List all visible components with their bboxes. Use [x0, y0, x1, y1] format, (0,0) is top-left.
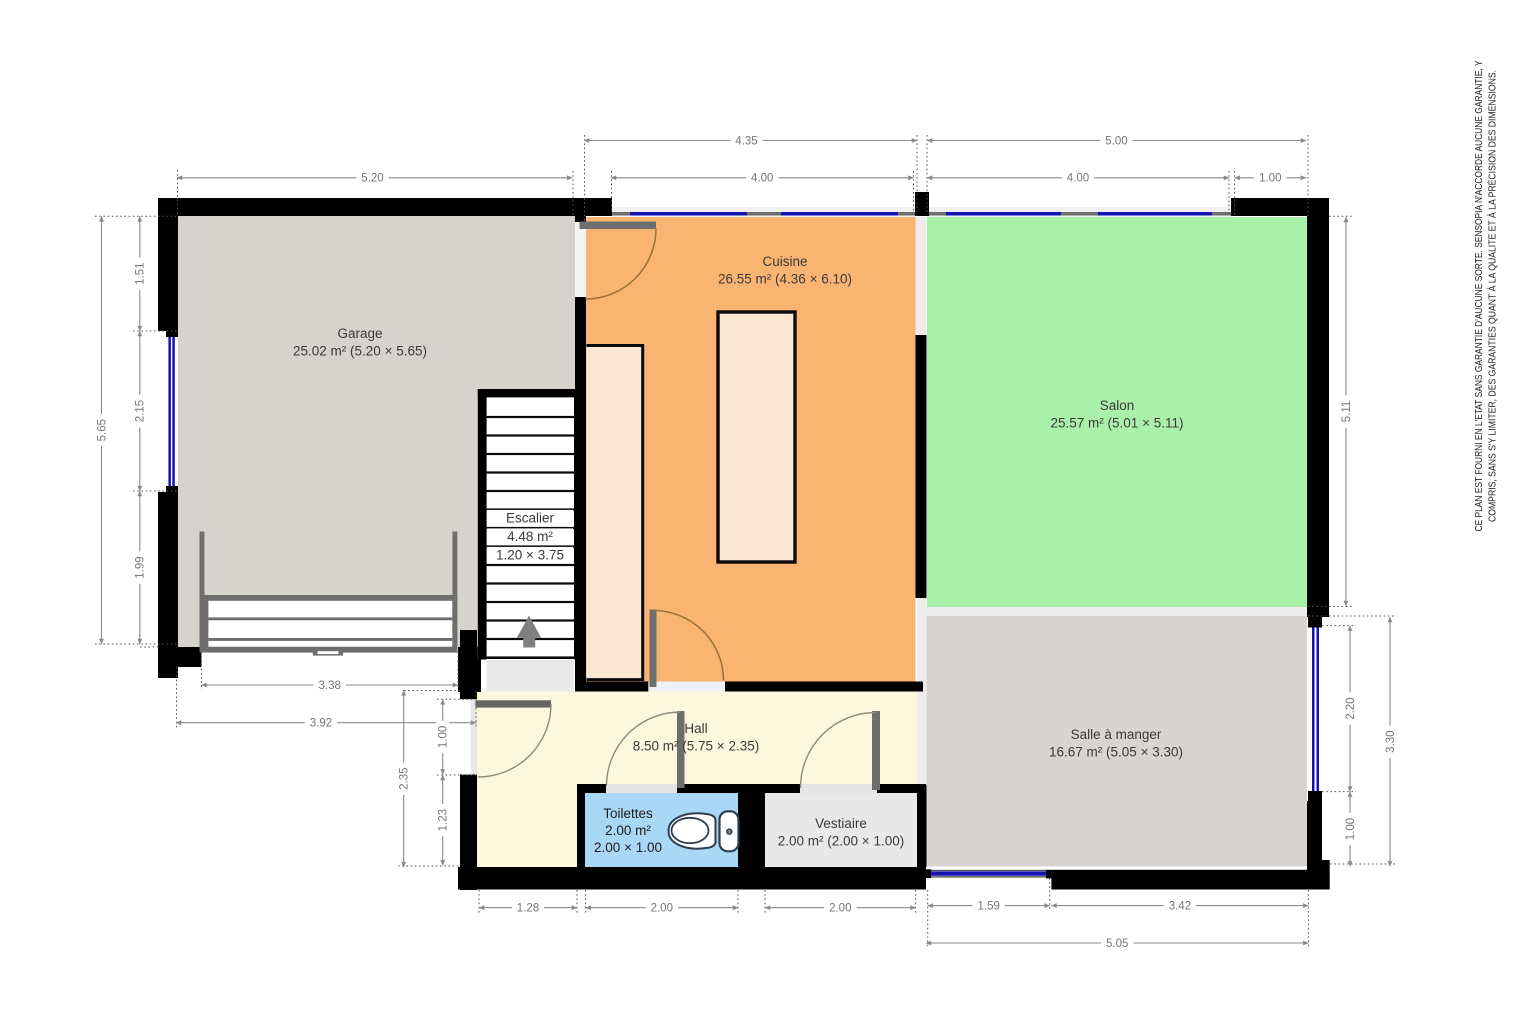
- svg-text:3.38: 3.38: [319, 680, 341, 692]
- svg-text:2.15: 2.15: [135, 400, 147, 422]
- svg-text:5.05: 5.05: [1106, 938, 1128, 950]
- svg-text:5.00: 5.00: [1105, 135, 1127, 147]
- svg-text:Garage: Garage: [337, 326, 382, 341]
- svg-text:25.02 m² (5.20 × 5.65): 25.02 m² (5.20 × 5.65): [293, 343, 427, 358]
- svg-text:2.00 m²: 2.00 m²: [605, 823, 651, 838]
- svg-text:4.00: 4.00: [751, 173, 773, 185]
- svg-text:1.00: 1.00: [1345, 818, 1357, 840]
- svg-text:2.20: 2.20: [1345, 697, 1357, 719]
- svg-text:16.67 m² (5.05 × 3.30): 16.67 m² (5.05 × 3.30): [1049, 744, 1183, 759]
- svg-text:1.99: 1.99: [135, 556, 147, 578]
- svg-text:1.59: 1.59: [978, 901, 1000, 913]
- svg-text:4.00: 4.00: [1067, 173, 1089, 185]
- svg-text:3.42: 3.42: [1169, 901, 1191, 913]
- svg-text:2.00 m² (2.00 × 1.00): 2.00 m² (2.00 × 1.00): [778, 833, 904, 848]
- svg-text:8.50 m² (5.75 × 2.35): 8.50 m² (5.75 × 2.35): [633, 738, 759, 753]
- svg-text:3.30: 3.30: [1385, 731, 1397, 753]
- svg-text:1.28: 1.28: [517, 903, 539, 915]
- svg-text:Salle à manger: Salle à manger: [1071, 727, 1162, 742]
- svg-text:Cuisine: Cuisine: [762, 254, 807, 269]
- svg-text:2.00 × 1.00: 2.00 × 1.00: [594, 840, 662, 855]
- svg-text:COMPRIS, SANS S'Y LIMITER, DES: COMPRIS, SANS S'Y LIMITER, DES GARANTIES…: [1486, 70, 1499, 522]
- svg-text:CE PLAN EST FOURNI EN L'ETAT S: CE PLAN EST FOURNI EN L'ETAT SANS GARANT…: [1473, 61, 1485, 532]
- svg-text:26.55 m² (4.36 × 6.10): 26.55 m² (4.36 × 6.10): [718, 271, 852, 286]
- svg-text:1.00: 1.00: [1259, 173, 1281, 185]
- svg-text:2.00: 2.00: [651, 903, 673, 915]
- svg-text:1.00: 1.00: [438, 726, 450, 748]
- svg-text:4.48 m²: 4.48 m²: [507, 529, 553, 544]
- svg-text:2.35: 2.35: [399, 768, 411, 790]
- svg-text:Escalier: Escalier: [506, 511, 555, 526]
- svg-text:4.35: 4.35: [735, 135, 757, 147]
- svg-text:5.65: 5.65: [96, 419, 108, 441]
- svg-text:Hall: Hall: [684, 721, 707, 736]
- svg-text:5.11: 5.11: [1341, 401, 1353, 423]
- svg-text:25.57 m² (5.01 × 5.11): 25.57 m² (5.01 × 5.11): [1051, 415, 1184, 430]
- svg-text:2.00: 2.00: [829, 903, 851, 915]
- svg-text:1.20 × 3.75: 1.20 × 3.75: [496, 548, 564, 563]
- svg-text:Salon: Salon: [1100, 398, 1135, 413]
- svg-text:5.20: 5.20: [361, 173, 383, 185]
- svg-text:Toilettes: Toilettes: [603, 806, 653, 821]
- svg-text:1.23: 1.23: [438, 809, 450, 831]
- svg-text:3.92: 3.92: [310, 718, 332, 730]
- svg-text:1.51: 1.51: [135, 262, 147, 284]
- svg-text:Vestiaire: Vestiaire: [815, 816, 867, 831]
